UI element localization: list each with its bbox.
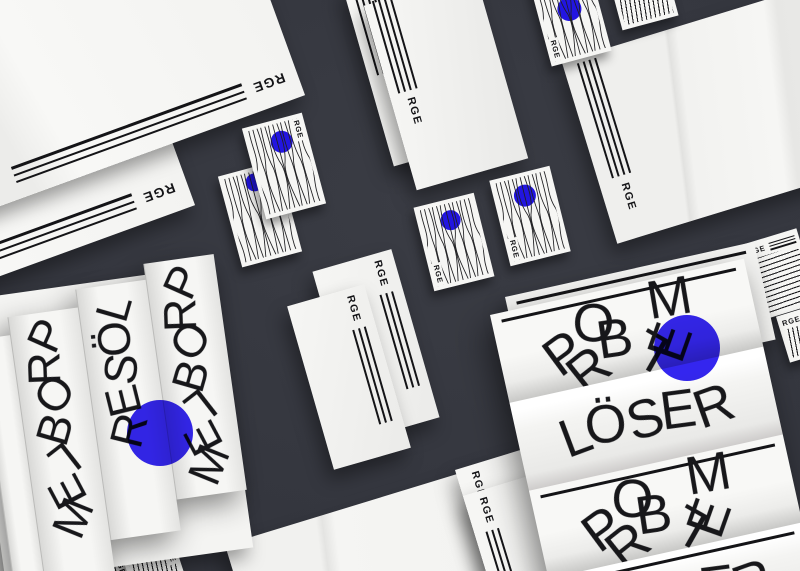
- business-card: RGE: [489, 166, 570, 266]
- wavy-line-pattern: [494, 171, 566, 262]
- brand-dot: [654, 315, 720, 381]
- business-card: RGE: [414, 193, 495, 291]
- business-card-back: RGE: [605, 0, 678, 30]
- brand-dot: [127, 400, 193, 466]
- rule-lines: [575, 57, 633, 179]
- rge-logo: RGE: [405, 96, 423, 127]
- wavy-line-pattern: [418, 198, 489, 287]
- rge-logo: RGE: [477, 496, 495, 525]
- rge-logo: RGE: [250, 70, 287, 94]
- envelope-tall-front: RGE: [364, 0, 528, 190]
- rge-logo: RGE: [140, 180, 177, 204]
- rge-logo: RGE: [372, 259, 390, 288]
- stripe-pattern: [610, 0, 673, 25]
- brochure-right: PROBLEM LÖSER PROBLEM LÖSER: [490, 259, 800, 571]
- wavy-line-pattern: [533, 0, 606, 62]
- trifold-edge-branding: RGE: [575, 57, 644, 214]
- rge-logo: RGE: [345, 294, 363, 323]
- rule-lines: [483, 527, 522, 571]
- brochure-left: PROBLEM LÖSER PROBLEM: [0, 254, 259, 571]
- rge-logo: RGE: [619, 182, 638, 213]
- mockup-scene: RGE RGE RGE RGE RGE RGE: [0, 0, 800, 571]
